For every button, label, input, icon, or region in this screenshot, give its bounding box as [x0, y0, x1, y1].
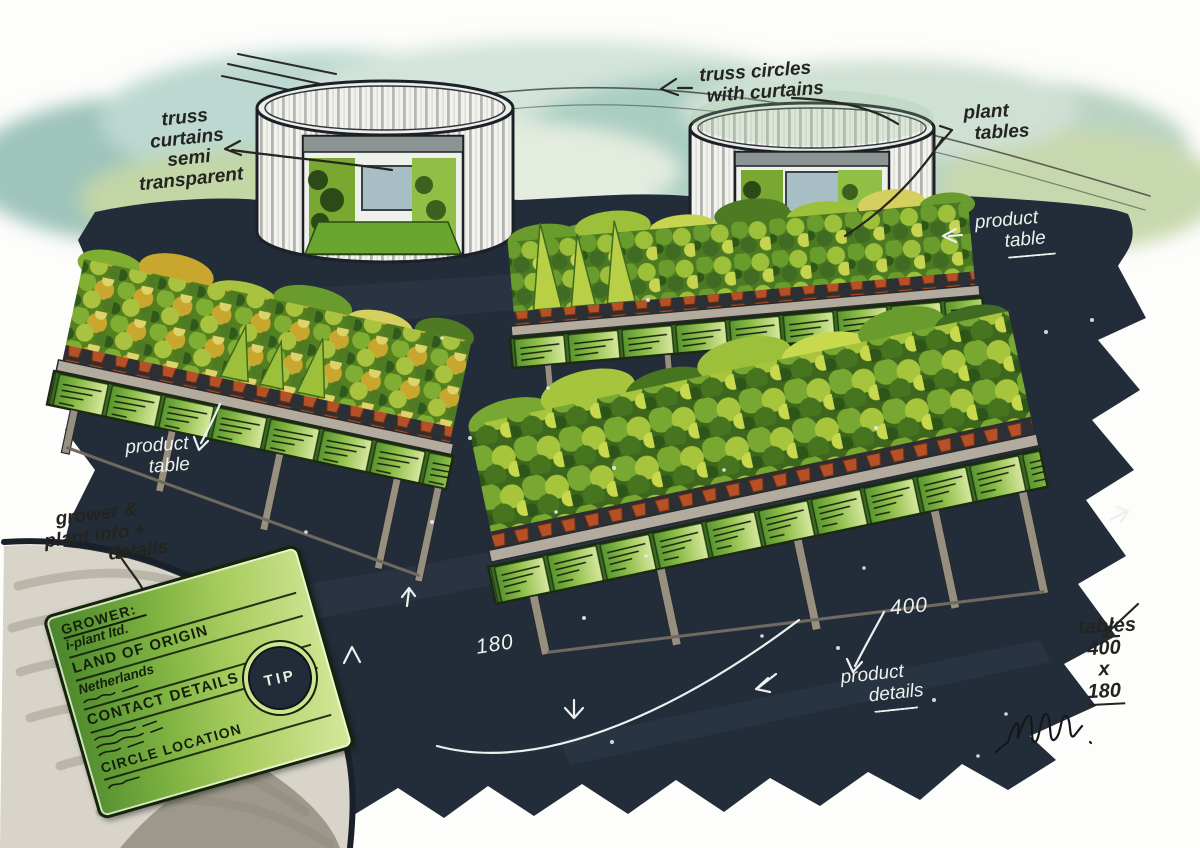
annotation-line: table [1004, 227, 1056, 252]
annotation-truss-curtains: truss curtains semi transparent [114, 101, 262, 197]
annotation-line: table [148, 454, 191, 477]
concept-sketch-canvas: truss curtains semi transparent truss ci… [0, 0, 1200, 848]
annotation-line: tables [1078, 615, 1137, 640]
dimension-400: 400 [889, 594, 929, 620]
annotation-line: 180 [1087, 680, 1126, 707]
annotation-line: tables [974, 121, 1030, 144]
annotation-table-size: tables 400 x 180 [1078, 615, 1140, 707]
dimension-value: 400 [889, 593, 929, 619]
tip-label: TIP [262, 666, 297, 689]
annotation-plant-tables: plant tables [963, 100, 1030, 144]
annotation-product-table-right: product table [974, 207, 1056, 262]
truss-circle-left [257, 81, 513, 262]
annotation-line: 400 [1087, 636, 1138, 660]
annotation-line: x [1098, 658, 1139, 682]
annotation-truss-circles: truss circles with curtains [699, 58, 825, 108]
annotation-product-table-left: product table [125, 434, 191, 479]
annotation-line: details [868, 680, 925, 706]
dimension-value: 180 [474, 630, 515, 659]
annotation-product-details: product details [840, 660, 925, 716]
